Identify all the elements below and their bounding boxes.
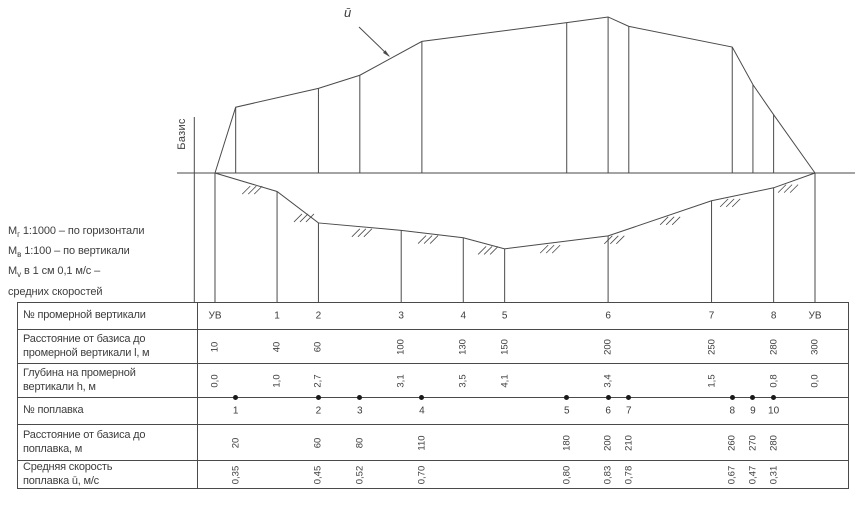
vertical-distance: 60	[313, 341, 324, 352]
vertical-depth: 3,5	[458, 374, 469, 387]
vertical-depth: 0,8	[768, 374, 779, 387]
hatch-mark	[540, 245, 548, 253]
velocity-symbol-label: ū	[344, 5, 351, 20]
table-row-vertical-number: № промерной вертикали УВ12345678УВ	[18, 303, 848, 329]
vertical-depth: 2,7	[313, 374, 324, 387]
float-position-dot	[357, 395, 362, 400]
float-velocity: 0,45	[313, 465, 324, 484]
float-position-dot	[730, 395, 735, 400]
vertical-number: 5	[502, 311, 508, 322]
hatch-mark	[478, 246, 486, 254]
float-number: 2	[316, 406, 322, 417]
vertical-distance: 40	[272, 341, 283, 352]
vertical-depth: 0,0	[810, 374, 821, 387]
row-data: 12345678910	[198, 398, 848, 424]
float-position-dot	[316, 395, 321, 400]
float-velocity: 0,80	[561, 465, 572, 484]
hatch-mark	[784, 185, 792, 193]
float-velocity: 0,31	[768, 465, 779, 484]
float-velocity: 0,47	[747, 465, 758, 484]
vertical-number: 3	[398, 311, 404, 322]
float-velocity: 0,78	[623, 465, 634, 484]
scale-note-line-vertical: Мв 1:100 – по вертикали	[8, 243, 144, 263]
hatch-mark	[660, 217, 668, 225]
float-number: 6	[605, 406, 611, 417]
float-number: 4	[419, 406, 425, 417]
vertical-distance: 200	[603, 339, 614, 355]
vertical-number: 1	[274, 311, 280, 322]
float-velocity: 0,70	[416, 465, 427, 484]
leader-line	[359, 27, 389, 56]
row-header: № промерной вертикали	[18, 303, 198, 329]
table-row-vertical-distance: Расстояние от базиса до промерной вертик…	[18, 329, 848, 363]
float-number: 1	[233, 406, 239, 417]
float-position-dot	[626, 395, 631, 400]
float-distance: 200	[603, 435, 614, 451]
float-position-dot	[564, 395, 569, 400]
float-velocity: 0,67	[727, 465, 738, 484]
float-position-dot	[771, 395, 776, 400]
float-distance: 60	[313, 437, 324, 448]
hatch-mark	[490, 246, 498, 254]
bed-profile	[215, 173, 815, 249]
float-number: 5	[564, 406, 570, 417]
hatch-mark	[790, 185, 798, 193]
float-distance: 210	[623, 435, 634, 451]
vertical-number: УВ	[808, 311, 821, 322]
float-distance: 80	[354, 437, 365, 448]
hatch-mark	[300, 214, 308, 222]
vertical-distance: 250	[706, 339, 717, 355]
hatch-mark	[484, 246, 492, 254]
float-number: 10	[768, 406, 779, 417]
float-distance: 110	[416, 435, 427, 450]
scale-note: Мг 1:1000 – по горизонтали Мв 1:100 – по…	[8, 223, 144, 300]
float-position-dot	[750, 395, 755, 400]
row-header-text: Глубина на промерной	[23, 367, 195, 381]
float-distance: 260	[727, 435, 738, 451]
row-data: УВ12345678УВ	[198, 303, 848, 329]
hatch-mark	[424, 236, 432, 244]
vertical-distance: 100	[396, 339, 407, 355]
table-row-float-distance: Расстояние от базиса до поплавка, м 2060…	[18, 424, 848, 460]
hatch-mark	[248, 186, 256, 194]
hatch-mark	[726, 199, 734, 207]
hatch-mark	[778, 185, 786, 193]
row-header: Расстояние от базиса до поплавка, м	[18, 425, 198, 460]
float-distance: 270	[747, 435, 758, 451]
float-position-dot	[606, 395, 611, 400]
row-data: 104060100130150200250280300	[198, 330, 848, 363]
float-distance: 180	[561, 435, 572, 451]
hatch-mark	[720, 199, 728, 207]
vertical-distance: 300	[810, 339, 821, 355]
float-number: 3	[357, 406, 363, 417]
row-header-text: поплавка ū, м/с	[23, 475, 195, 489]
vertical-depth: 3,4	[603, 374, 614, 387]
table-row-float-velocity: Средняя скорость поплавка ū, м/с 0,350,4…	[18, 460, 848, 488]
row-data: 0,01,02,73,13,54,13,41,50,80,0	[198, 364, 848, 397]
row-header: Расстояние от базиса до промерной вертик…	[18, 330, 198, 363]
float-position-dot	[419, 395, 424, 400]
float-distance: 280	[768, 435, 779, 451]
row-data: 0,350,450,520,700,800,830,780,670,470,31	[198, 461, 848, 488]
scale-note-line-velocity2: средних скоростей	[8, 284, 144, 300]
vertical-depth: 1,0	[272, 374, 283, 387]
vertical-depth: 0,0	[209, 374, 220, 387]
row-header-text: № поплавка	[23, 404, 195, 418]
hatch-mark	[294, 214, 302, 222]
float-position-dot	[233, 395, 238, 400]
float-velocity: 0,35	[230, 465, 241, 484]
row-header-text: поплавка, м	[23, 443, 195, 457]
vertical-number: 2	[316, 311, 322, 322]
hatch-mark	[418, 236, 426, 244]
hatch-mark	[364, 229, 372, 237]
hatch-mark	[672, 217, 680, 225]
table-row-float-number: № поплавка 12345678910	[18, 397, 848, 424]
hatch-mark	[306, 214, 314, 222]
hatch-mark	[552, 245, 560, 253]
float-velocity: 0,52	[354, 465, 365, 484]
table-row-depth: Глубина на промерной вертикали h, м 0,01…	[18, 363, 848, 397]
row-header: Средняя скорость поплавка ū, м/с	[18, 461, 198, 488]
vertical-number: 7	[709, 311, 715, 322]
basis-axis-label: Базис	[176, 104, 188, 164]
row-header-text: Средняя скорость	[23, 461, 195, 475]
row-header: Глубина на промерной вертикали h, м	[18, 364, 198, 397]
vertical-distance: 130	[458, 339, 469, 355]
hatch-mark	[666, 217, 674, 225]
hatch-mark	[358, 229, 366, 237]
hatch-mark	[242, 186, 250, 194]
vertical-distance: 150	[499, 339, 510, 355]
vertical-depth: 3,1	[396, 374, 407, 387]
hatch-mark	[610, 236, 618, 244]
hatch-mark	[546, 245, 554, 253]
row-header-text: вертикали h, м	[23, 381, 195, 395]
row-header-text: Расстояние от базиса до	[23, 429, 195, 443]
hatch-mark	[352, 229, 360, 237]
hydrometric-profile-sheet: ū Базис Мг 1:1000 – по горизонтали Мв 1:…	[0, 0, 858, 511]
hatch-mark	[732, 199, 740, 207]
float-distance: 20	[230, 437, 241, 448]
row-header: № поплавка	[18, 398, 198, 424]
float-velocity: 0,83	[603, 465, 614, 484]
measurement-table: № промерной вертикали УВ12345678УВ Расст…	[17, 302, 849, 489]
velocity-curve	[215, 17, 815, 173]
scale-note-line-horizontal: Мг 1:1000 – по горизонтали	[8, 223, 144, 243]
vertical-number: УВ	[208, 311, 221, 322]
hatch-mark	[616, 236, 624, 244]
vertical-distance: 10	[209, 341, 220, 352]
float-number: 9	[750, 406, 756, 417]
hatch-mark	[604, 236, 612, 244]
vertical-depth: 4,1	[499, 374, 510, 387]
row-data: 206080110180200210260270280	[198, 425, 848, 460]
vertical-number: 6	[605, 311, 611, 322]
leader-arrowhead	[383, 50, 390, 57]
float-number: 7	[626, 406, 632, 417]
vertical-distance: 280	[768, 339, 779, 355]
vertical-number: 8	[771, 311, 777, 322]
row-header-text: № промерной вертикали	[23, 309, 195, 323]
vertical-number: 4	[460, 311, 466, 322]
row-header-text: промерной вертикали l, м	[23, 347, 195, 361]
scale-note-line-velocity: Мv в 1 см 0,1 м/с –	[8, 263, 144, 283]
float-number: 8	[729, 406, 735, 417]
row-header-text: Расстояние от базиса до	[23, 333, 195, 347]
hatch-mark	[430, 236, 438, 244]
vertical-depth: 1,5	[706, 374, 717, 387]
hatch-mark	[254, 186, 262, 194]
